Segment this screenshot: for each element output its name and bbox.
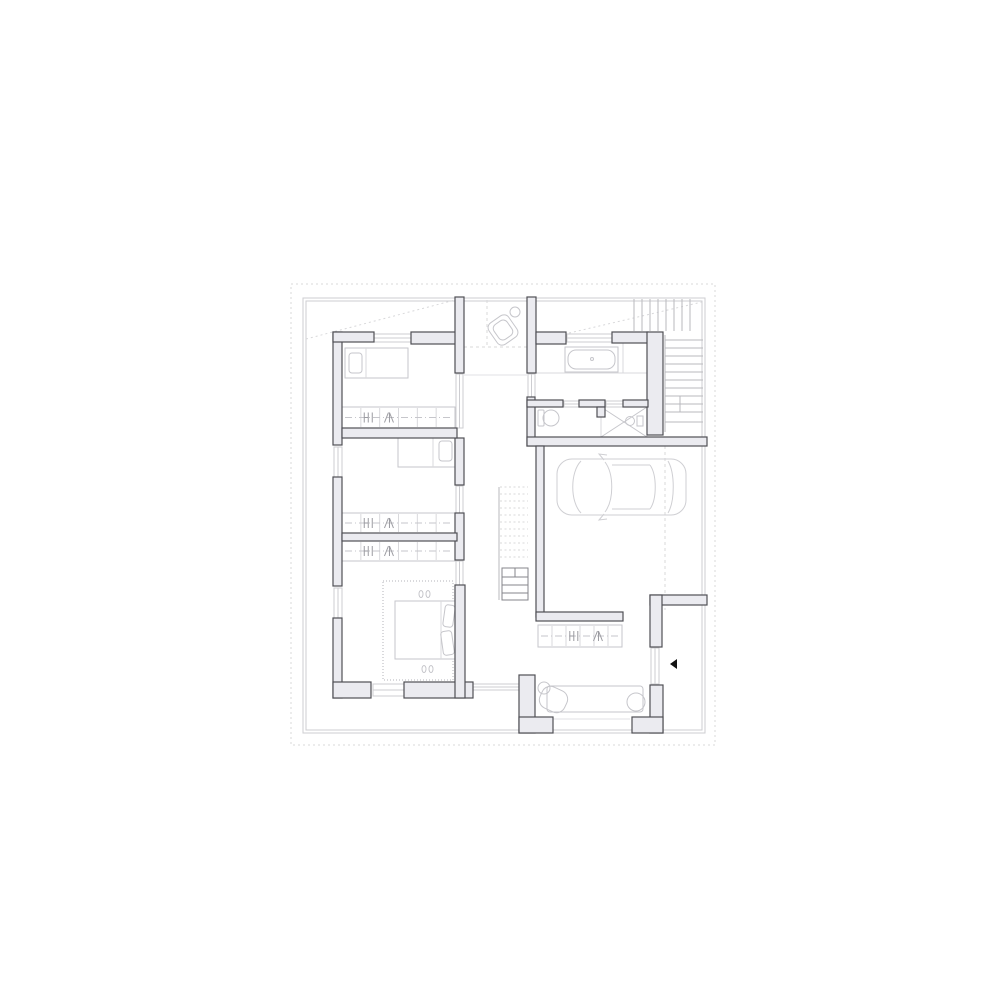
toilet-icon <box>538 410 559 426</box>
wardrobe-closet <box>538 625 622 647</box>
staircase-main <box>634 299 703 432</box>
washbasin-icon <box>486 307 521 348</box>
floor-plan-canvas <box>0 0 999 1000</box>
entrance-arrow-icon <box>670 659 677 669</box>
wardrobe-closet <box>342 407 455 428</box>
shower-icon <box>601 407 647 437</box>
screenshot-root: { "plan": { "colors": { "background": "#… <box>0 0 999 1000</box>
staircase-basement <box>499 487 528 600</box>
single-bed-icon <box>345 348 408 378</box>
car-icon <box>557 454 686 520</box>
wardrobe-closet <box>342 541 455 561</box>
single-bed-icon <box>398 437 455 467</box>
bench-icon <box>536 682 645 716</box>
floor-plan-drawing <box>0 0 999 1000</box>
double-bed-icon <box>383 581 455 680</box>
wardrobe-closet <box>342 513 455 533</box>
